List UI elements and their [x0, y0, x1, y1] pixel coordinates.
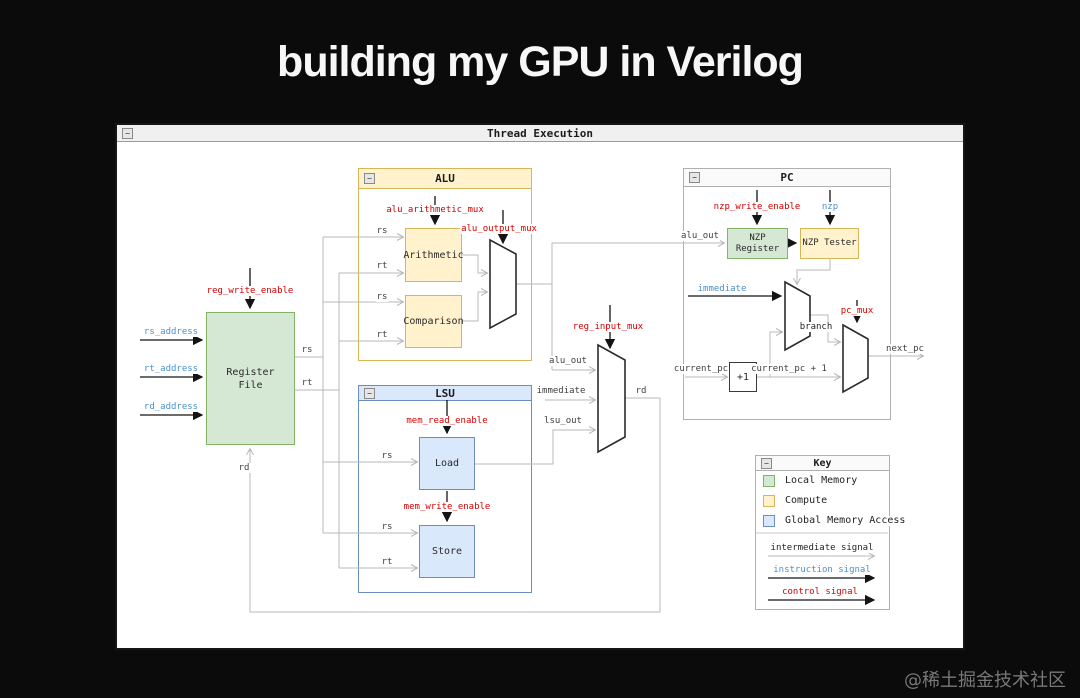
stage: building my GPU in Verilog − Thread Exec…	[0, 0, 1080, 698]
control-signal-label: control signal	[781, 587, 859, 597]
rd-address-label: rd_address	[143, 402, 199, 412]
comparison-box: Comparison	[405, 295, 462, 348]
lsu-title: LSU	[359, 387, 531, 400]
register-file-box: Register File	[206, 312, 295, 445]
alu-collapse-icon[interactable]: −	[364, 173, 375, 184]
rs-address-label: rs_address	[143, 327, 199, 337]
nzp-register-label: NZP Register	[736, 233, 779, 255]
mux-rd-label: rd	[635, 386, 648, 396]
key-title: Key	[756, 458, 889, 469]
pc-mux-label: pc_mux	[840, 306, 875, 316]
alu-rt1-label: rt	[376, 261, 389, 271]
alu-output-mux-label: alu_output_mux	[460, 224, 538, 234]
mem-write-enable-label: mem_write_enable	[403, 502, 492, 512]
register-file-label-line2: File	[238, 380, 262, 391]
register-file-label: Register File	[226, 366, 274, 392]
store-box: Store	[419, 525, 475, 578]
lsu-rt-label: rt	[381, 557, 394, 567]
window-title: Thread Execution	[117, 127, 963, 140]
nzp-label: nzp	[821, 202, 839, 212]
mux-lsu-out-label: lsu_out	[543, 416, 583, 426]
nzp-write-enable-label: nzp_write_enable	[713, 202, 802, 212]
mux-alu-out-label: alu_out	[548, 356, 588, 366]
alu-rs1-label: rs	[376, 226, 389, 236]
lsu-rs1-label: rs	[381, 451, 394, 461]
mem-read-enable-label: mem_read_enable	[405, 416, 488, 426]
register-file-label-line1: Register	[226, 367, 274, 378]
local-memory-swatch	[763, 475, 775, 487]
pc-immediate-label: immediate	[697, 284, 748, 294]
compute-swatch	[763, 495, 775, 507]
reg-write-enable-label: reg_write_enable	[206, 286, 295, 296]
window-titlebar[interactable]: − Thread Execution	[117, 125, 963, 142]
next-pc-label: next_pc	[885, 344, 925, 354]
key-collapse-icon[interactable]: −	[761, 458, 772, 469]
rs-out-label: rs	[301, 345, 314, 355]
arithmetic-box: Arithmetic	[405, 228, 462, 282]
alu-arithmetic-mux-label: alu_arithmetic_mux	[385, 205, 485, 215]
page-title: building my GPU in Verilog	[0, 38, 1080, 87]
rd-in-label: rd	[238, 463, 251, 473]
alu-rt2-label: rt	[376, 330, 389, 340]
nzp-register-label-line1: NZP	[749, 233, 765, 243]
local-memory-label: Local Memory	[784, 476, 858, 486]
rt-address-label: rt_address	[143, 364, 199, 374]
alu-rs2-label: rs	[376, 292, 389, 302]
alu-title: ALU	[359, 172, 531, 185]
reg-input-mux-label: reg_input_mux	[572, 322, 644, 332]
instruction-signal-label: instruction signal	[772, 565, 872, 575]
lsu-rs2-label: rs	[381, 522, 394, 532]
pc-collapse-icon[interactable]: −	[689, 172, 700, 183]
current-pc-label: current_pc	[673, 364, 729, 374]
current-pc-plus1-label: current_pc + 1	[750, 364, 828, 374]
load-box: Load	[419, 437, 475, 490]
window-collapse-icon[interactable]: −	[122, 128, 133, 139]
branch-label: branch	[799, 322, 834, 332]
pc-alu-out-label: alu_out	[680, 231, 720, 241]
rt-out-label: rt	[301, 378, 314, 388]
global-memory-label: Global Memory Access	[784, 516, 906, 526]
lsu-collapse-icon[interactable]: −	[364, 388, 375, 399]
pc-title: PC	[684, 171, 890, 184]
nzp-register-box: NZP Register	[727, 228, 788, 259]
compute-label: Compute	[784, 496, 828, 506]
global-memory-swatch	[763, 515, 775, 527]
intermediate-signal-label: intermediate signal	[770, 543, 875, 553]
nzp-register-label-line2: Register	[736, 244, 779, 254]
nzp-tester-box: NZP Tester	[800, 228, 859, 259]
watermark: @稀土掘金技术社区	[904, 666, 1066, 692]
mux-immediate-label: immediate	[536, 386, 587, 396]
